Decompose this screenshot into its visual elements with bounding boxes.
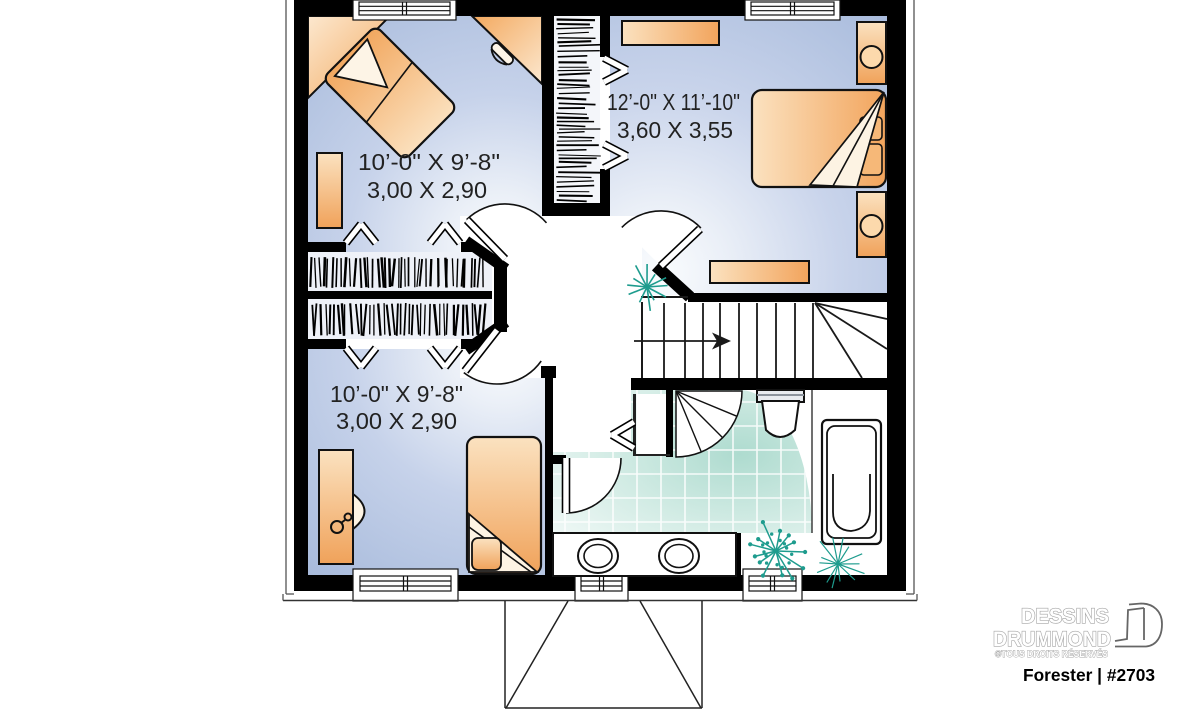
- svg-text:3,00 X 2,90: 3,00 X 2,90: [367, 177, 487, 203]
- svg-text:3,00 X 2,90: 3,00 X 2,90: [336, 408, 457, 434]
- svg-text:DRUMMOND: DRUMMOND: [993, 628, 1111, 651]
- svg-text:10’-0" X 9’-8": 10’-0" X 9’-8": [358, 149, 500, 175]
- svg-text:Forester | #2703: Forester | #2703: [1023, 665, 1155, 685]
- svg-text:DESSINS: DESSINS: [1021, 605, 1109, 628]
- svg-text:©TOUS DROITS RÉSERVÉS: ©TOUS DROITS RÉSERVÉS: [995, 649, 1108, 659]
- svg-text:12’-0" X 11’-10": 12’-0" X 11’-10": [607, 89, 740, 115]
- svg-text:3,60 X 3,55: 3,60 X 3,55: [617, 117, 733, 143]
- svg-text:10’-0" X 9’-8": 10’-0" X 9’-8": [330, 381, 463, 407]
